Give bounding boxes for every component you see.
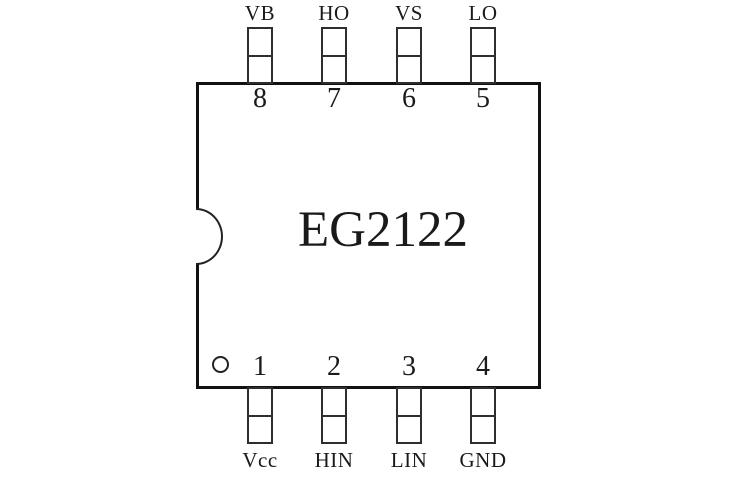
- pin-4-number: 4: [443, 353, 523, 381]
- pin-column-4: 4 GND: [443, 352, 523, 481]
- pin-3-name: LIN: [369, 448, 449, 472]
- pin-column-5: LO 5: [443, 0, 523, 115]
- pin-8-number: 8: [220, 85, 300, 113]
- pin-3-lead: [396, 387, 422, 444]
- pin-7-lead: [321, 27, 347, 84]
- pin-6-lead: [396, 27, 422, 84]
- pin-2-lead: [321, 387, 347, 444]
- pin-2-name: HIN: [294, 448, 374, 472]
- pin-1-lead: [247, 387, 273, 444]
- pin-5-number: 5: [443, 85, 523, 113]
- pin-column-8: VB 8: [220, 0, 300, 115]
- pin-7-name: HO: [294, 1, 374, 25]
- pin-5-name: LO: [443, 1, 523, 25]
- pin-3-number: 3: [369, 353, 449, 381]
- pin-1-name: Vcc: [220, 448, 300, 472]
- pin-1-number: 1: [220, 353, 300, 381]
- pin-6-number: 6: [369, 85, 449, 113]
- pin-4-name: GND: [443, 448, 523, 472]
- pin-column-3: 3 LIN: [369, 352, 449, 481]
- pin-column-2: 2 HIN: [294, 352, 374, 481]
- pin-column-6: VS 6: [369, 0, 449, 115]
- pin-5-lead: [470, 27, 496, 84]
- pin-column-7: HO 7: [294, 0, 374, 115]
- chip-pinout-diagram: EG2122 VB 8 HO 7 VS 6 LO 5 1 Vcc 2 HIN 3…: [0, 0, 742, 481]
- pin-8-lead: [247, 27, 273, 84]
- pin-6-name: VS: [369, 1, 449, 25]
- chip-part-number: EG2122: [298, 205, 468, 256]
- pin-column-1: 1 Vcc: [220, 352, 300, 481]
- pin-4-lead: [470, 387, 496, 444]
- pin-8-name: VB: [220, 1, 300, 25]
- pin-2-number: 2: [294, 353, 374, 381]
- pin-7-number: 7: [294, 85, 374, 113]
